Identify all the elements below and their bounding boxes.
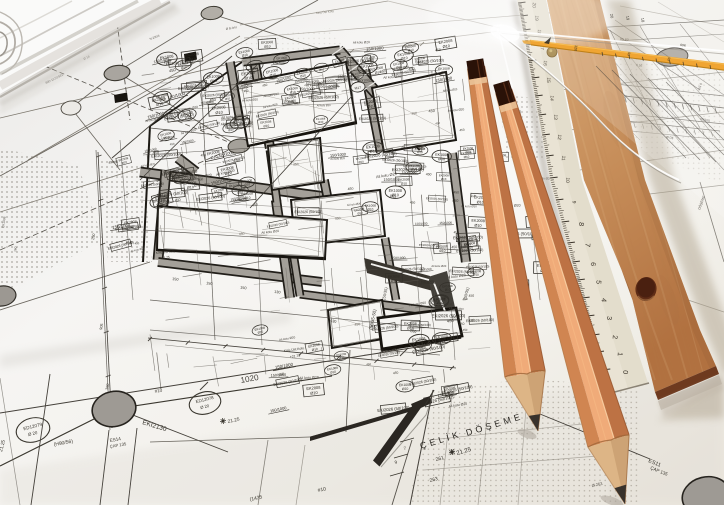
svg-text:Ail kotu Ø20: Ail kotu Ø20: [317, 103, 332, 107]
svg-text:450: 450: [428, 109, 435, 114]
svg-text:450: 450: [347, 187, 353, 192]
svg-text:14: 14: [548, 95, 554, 101]
svg-text:130: 130: [274, 290, 281, 295]
svg-text:Ø10: Ø10: [438, 157, 445, 161]
svg-text:8: 8: [577, 222, 584, 227]
svg-text:4: 4: [600, 298, 607, 303]
svg-text:2: 2: [611, 335, 618, 340]
svg-text:Ø10: Ø10: [391, 279, 397, 283]
svg-text:Ø10: Ø10: [474, 223, 481, 227]
svg-text:450: 450: [459, 128, 465, 133]
svg-text:Ø10: Ø10: [367, 207, 373, 211]
svg-text:150: 150: [206, 281, 213, 286]
svg-text:0: 0: [621, 370, 628, 375]
svg-text:150: 150: [172, 277, 179, 282]
svg-text:450: 450: [426, 172, 432, 176]
svg-text:10: 10: [564, 177, 570, 183]
svg-text:11: 11: [560, 155, 566, 161]
svg-text:Ø10: Ø10: [473, 273, 479, 277]
svg-text:450: 450: [452, 199, 458, 203]
svg-text:Ail kotu Ø20: Ail kotu Ø20: [461, 204, 477, 208]
svg-text:150/1000: 150/1000: [415, 222, 428, 226]
svg-text:Ø10: Ø10: [439, 249, 446, 254]
svg-text:Ø10: Ø10: [215, 110, 224, 116]
svg-text:EK2008: EK2008: [471, 219, 485, 224]
svg-text:Ail kotu Ø20: Ail kotu Ø20: [353, 40, 370, 44]
svg-text:450: 450: [239, 232, 245, 237]
svg-text:Ø10: Ø10: [232, 187, 238, 191]
svg-text:150/1000: 150/1000: [299, 87, 315, 91]
svg-text:EKI2026 (50/100): EKI2026 (50/100): [294, 210, 322, 214]
svg-text:1: 1: [616, 352, 623, 357]
svg-text:6: 6: [589, 262, 596, 267]
svg-text:3: 3: [605, 316, 612, 321]
svg-text:12: 12: [556, 134, 562, 140]
svg-text:Ø10: Ø10: [445, 287, 451, 291]
svg-text:Ø10: Ø10: [402, 387, 409, 391]
svg-text:150: 150: [240, 286, 247, 291]
svg-text:Ø10: Ø10: [163, 58, 171, 64]
svg-text:150/1000: 150/1000: [383, 178, 399, 182]
svg-text:09: 09: [627, 52, 631, 56]
svg-text:EKI2026 (50/100): EKI2026 (50/100): [308, 94, 339, 100]
svg-text:13: 13: [552, 114, 558, 120]
svg-text:450: 450: [125, 240, 133, 246]
svg-text:Ø10: Ø10: [441, 177, 447, 181]
svg-text:450: 450: [293, 162, 299, 167]
svg-text:7: 7: [583, 243, 590, 248]
svg-text:Ail kotu Ø20: Ail kotu Ø20: [449, 307, 465, 311]
svg-text:450: 450: [354, 322, 360, 327]
svg-text:Ø10: Ø10: [290, 90, 297, 95]
svg-text:Ø10: Ø10: [264, 44, 271, 48]
svg-text:450: 450: [411, 111, 417, 116]
svg-text:450: 450: [453, 190, 459, 194]
svg-text:450: 450: [366, 362, 371, 366]
svg-text:Ø10: Ø10: [279, 59, 285, 63]
svg-text:Ail kotu Ø20: Ail kotu Ø20: [431, 264, 446, 268]
svg-text:Ø10: Ø10: [187, 185, 194, 189]
svg-text:150/1000: 150/1000: [337, 75, 353, 80]
svg-text:450: 450: [134, 241, 139, 245]
svg-text:Ø10: Ø10: [318, 120, 324, 124]
svg-text:Ø10: Ø10: [310, 390, 319, 396]
svg-text:5: 5: [594, 280, 601, 285]
svg-text:Ø10: Ø10: [392, 193, 399, 197]
svg-text:450: 450: [469, 294, 475, 298]
svg-text:Ø10: Ø10: [463, 155, 469, 160]
svg-text:450: 450: [335, 216, 341, 221]
svg-text:120: 120: [573, 45, 578, 51]
svg-text:Ø10: Ø10: [401, 181, 407, 185]
svg-text:160: 160: [13, 246, 18, 252]
svg-text:Ø10: Ø10: [441, 70, 448, 74]
svg-text:EKI2026 (50/100): EKI2026 (50/100): [432, 313, 466, 318]
svg-text:450: 450: [108, 160, 114, 165]
svg-text:EKI2026 (50/100): EKI2026 (50/100): [401, 146, 424, 151]
svg-text:05: 05: [667, 57, 671, 61]
svg-text:Ø10: Ø10: [263, 124, 270, 129]
svg-text:Ø10: Ø10: [417, 150, 423, 154]
svg-text:450: 450: [463, 328, 468, 332]
svg-text:450: 450: [447, 318, 455, 324]
svg-text:15: 15: [545, 77, 551, 83]
svg-text:EK1008: EK1008: [389, 189, 402, 193]
svg-text:450: 450: [410, 200, 416, 204]
svg-text:Ø10: Ø10: [358, 159, 364, 164]
svg-text:Ø10: Ø10: [477, 200, 484, 204]
svg-text:EKI2026 (50/100): EKI2026 (50/100): [403, 164, 426, 168]
svg-text:EKI2026 (50/100): EKI2026 (50/100): [466, 264, 489, 269]
svg-text:EKI2026 (50/100): EKI2026 (50/100): [408, 323, 431, 327]
svg-text:450: 450: [459, 322, 465, 327]
svg-text:Ø10: Ø10: [210, 79, 217, 84]
